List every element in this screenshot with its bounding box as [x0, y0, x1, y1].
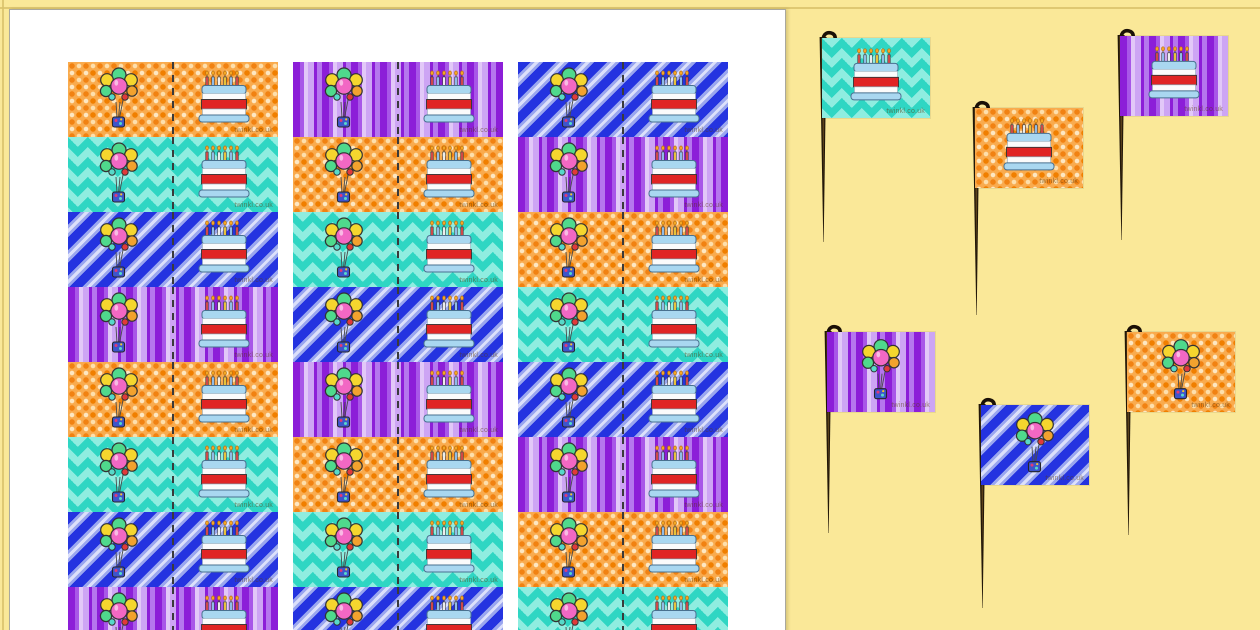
flag-cell: twinkl.co.uk: [293, 512, 503, 587]
watermark: twinkl.co.uk: [1039, 178, 1078, 186]
fold-line: [397, 512, 399, 587]
watermark: twinkl.co.uk: [1045, 475, 1084, 483]
flag-cell: twinkl.co.uk: [518, 62, 728, 137]
balloons-clipart: [546, 366, 592, 432]
fold-line: [397, 137, 399, 212]
balloons-clipart: [96, 441, 142, 507]
flag-cell: twinkl.co.uk: [293, 362, 503, 437]
fold-line: [397, 212, 399, 287]
cake-clipart: [642, 445, 706, 503]
fold-line: [622, 62, 624, 137]
cake-clipart: [417, 220, 481, 278]
flag-cell: twinkl.co.uk: [293, 437, 503, 512]
balloons-clipart: [321, 591, 367, 630]
fold-line: [172, 512, 174, 587]
cake-clipart: [642, 370, 706, 428]
flag-cell: twinkl.co.uk: [293, 62, 503, 137]
watermark: twinkl.co.uk: [459, 577, 498, 585]
balloons-clipart: [321, 366, 367, 432]
flag-cell: twinkl.co.uk: [293, 212, 503, 287]
cake-clipart: [642, 70, 706, 128]
flag-cell: twinkl.co.uk: [518, 137, 728, 212]
watermark: twinkl.co.uk: [684, 202, 723, 210]
cake-clipart: [417, 145, 481, 203]
balloons-clipart: [96, 591, 142, 630]
balloons-clipart: [1012, 411, 1058, 477]
flag-cell: twinkl.co.uk: [518, 512, 728, 587]
fold-line: [172, 362, 174, 437]
balloons-clipart: [546, 591, 592, 630]
cake-clipart: [417, 595, 481, 630]
watermark: twinkl.co.uk: [234, 577, 273, 585]
balloons-clipart: [546, 516, 592, 582]
cake-clipart: [642, 520, 706, 578]
cake-clipart: [417, 520, 481, 578]
cake-clipart: [417, 370, 481, 428]
balloons-clipart: [321, 66, 367, 132]
cake-clipart: [1142, 46, 1206, 104]
flag-cell: twinkl.co.uk: [68, 212, 278, 287]
pick-flag: twinkl.co.uk: [1127, 332, 1235, 412]
cake-clipart: [844, 48, 908, 106]
cake-clipart: [997, 118, 1061, 176]
watermark: twinkl.co.uk: [891, 402, 930, 410]
watermark: twinkl.co.uk: [459, 127, 498, 135]
cake-clipart: [642, 145, 706, 203]
fold-line: [397, 62, 399, 137]
fold-line: [397, 287, 399, 362]
cake-clipart: [192, 520, 256, 578]
flag-cell: twinkl.co.uk: [518, 362, 728, 437]
cake-clipart: [192, 595, 256, 630]
flag-cell: twinkl.co.uk: [518, 437, 728, 512]
flag-cell: twinkl.co.uk: [68, 287, 278, 362]
balloons-clipart: [96, 291, 142, 357]
watermark: twinkl.co.uk: [459, 427, 498, 435]
flag-cell: twinkl.co.uk: [293, 287, 503, 362]
balloons-clipart: [1158, 338, 1204, 404]
balloons-clipart: [321, 141, 367, 207]
balloons-clipart: [546, 441, 592, 507]
cake-clipart: [642, 220, 706, 278]
balloons-clipart: [96, 516, 142, 582]
watermark: twinkl.co.uk: [234, 277, 273, 285]
resource-preview: twinkl.co.uktwinkl.co.uktwinkl.co.uktwin…: [0, 0, 1260, 630]
pick-flag: twinkl.co.uk: [822, 38, 930, 118]
watermark: twinkl.co.uk: [459, 202, 498, 210]
watermark: twinkl.co.uk: [684, 277, 723, 285]
flag-cell: twinkl.co.uk: [518, 212, 728, 287]
fold-line: [172, 137, 174, 212]
fold-line: [172, 212, 174, 287]
balloons-clipart: [321, 516, 367, 582]
cake-clipart: [417, 70, 481, 128]
watermark: twinkl.co.uk: [459, 502, 498, 510]
watermark: twinkl.co.uk: [234, 127, 273, 135]
fold-line: [172, 62, 174, 137]
balloons-clipart: [546, 216, 592, 282]
balloons-clipart: [96, 366, 142, 432]
balloons-clipart: [96, 66, 142, 132]
watermark: twinkl.co.uk: [684, 352, 723, 360]
flag-cell: twinkl.co.uk: [293, 137, 503, 212]
watermark: twinkl.co.uk: [459, 352, 498, 360]
frame-line-left: [2, 0, 4, 630]
watermark: twinkl.co.uk: [234, 427, 273, 435]
flag-cell: twinkl.co.uk: [293, 587, 503, 630]
flag-cell: twinkl.co.uk: [518, 587, 728, 630]
fold-line: [397, 362, 399, 437]
fold-line: [172, 287, 174, 362]
balloons-clipart: [546, 141, 592, 207]
pick-flag: twinkl.co.uk: [1120, 36, 1228, 116]
watermark: twinkl.co.uk: [886, 108, 925, 116]
cake-clipart: [192, 145, 256, 203]
watermark: twinkl.co.uk: [1184, 106, 1223, 114]
watermark: twinkl.co.uk: [684, 427, 723, 435]
fold-line: [622, 287, 624, 362]
balloons-clipart: [96, 141, 142, 207]
balloons-clipart: [546, 291, 592, 357]
balloons-clipart: [96, 216, 142, 282]
cake-clipart: [642, 595, 706, 630]
watermark: twinkl.co.uk: [1191, 402, 1230, 410]
fold-line: [622, 512, 624, 587]
pick-flag: twinkl.co.uk: [981, 405, 1089, 485]
watermark: twinkl.co.uk: [234, 202, 273, 210]
flag-cell: twinkl.co.uk: [68, 362, 278, 437]
fold-line: [622, 212, 624, 287]
fold-line: [622, 137, 624, 212]
watermark: twinkl.co.uk: [234, 352, 273, 360]
balloons-clipart: [321, 216, 367, 282]
flag-cell: twinkl.co.uk: [68, 437, 278, 512]
flag-grid: twinkl.co.uktwinkl.co.uktwinkl.co.uktwin…: [68, 62, 728, 630]
balloons-clipart: [858, 338, 904, 404]
fold-line: [622, 437, 624, 512]
pick-flag: twinkl.co.uk: [975, 108, 1083, 188]
cake-clipart: [417, 445, 481, 503]
pick-flag: twinkl.co.uk: [827, 332, 935, 412]
fold-line: [397, 437, 399, 512]
flag-cell: twinkl.co.uk: [68, 137, 278, 212]
cake-clipart: [417, 295, 481, 353]
balloons-clipart: [321, 441, 367, 507]
cake-clipart: [192, 370, 256, 428]
cake-clipart: [192, 220, 256, 278]
printable-sheet: twinkl.co.uktwinkl.co.uktwinkl.co.uktwin…: [9, 9, 786, 630]
cake-clipart: [192, 70, 256, 128]
balloons-clipart: [321, 291, 367, 357]
fold-line: [397, 587, 399, 630]
flag-cell: twinkl.co.uk: [518, 287, 728, 362]
watermark: twinkl.co.uk: [684, 577, 723, 585]
watermark: twinkl.co.uk: [459, 277, 498, 285]
flag-cell: twinkl.co.uk: [68, 62, 278, 137]
fold-line: [172, 437, 174, 512]
watermark: twinkl.co.uk: [234, 502, 273, 510]
cake-clipart: [192, 445, 256, 503]
fold-line: [172, 587, 174, 630]
watermark: twinkl.co.uk: [684, 502, 723, 510]
cake-clipart: [642, 295, 706, 353]
fold-line: [622, 587, 624, 630]
balloons-clipart: [546, 66, 592, 132]
cake-clipart: [192, 295, 256, 353]
fold-line: [622, 362, 624, 437]
flag-cell: twinkl.co.uk: [68, 587, 278, 630]
watermark: twinkl.co.uk: [684, 127, 723, 135]
flag-cell: twinkl.co.uk: [68, 512, 278, 587]
